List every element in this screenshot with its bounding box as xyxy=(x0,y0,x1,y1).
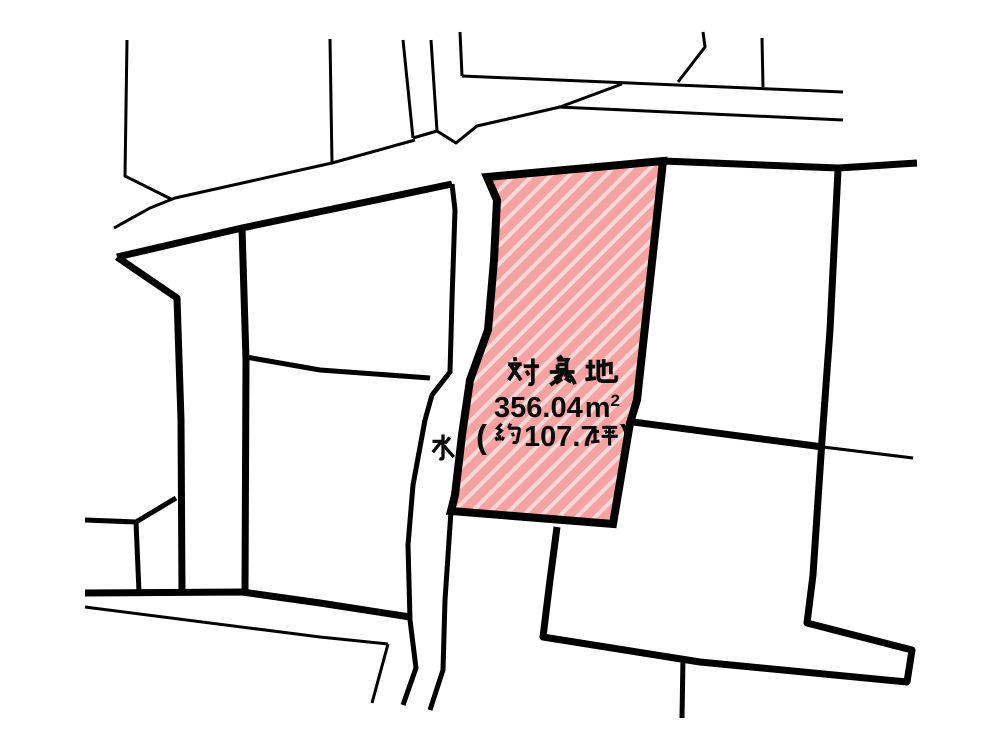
parcel-line xyxy=(682,657,683,718)
road-line xyxy=(460,32,462,76)
cadastral-map: 356.04m2 ( 107.7 ) xyxy=(0,0,1000,750)
tsubo-value: 107.7 xyxy=(524,421,597,453)
paren-open: ( xyxy=(476,418,487,455)
parcel-line xyxy=(242,228,246,590)
parcel-area-value: 356.04 xyxy=(494,392,583,424)
parcel-area-unit: m xyxy=(585,392,611,424)
parcel-area-unit-exponent: 2 xyxy=(611,391,620,410)
plot-map-page: 356.04m2 ( 107.7 ) xyxy=(0,0,1000,750)
parcel-line xyxy=(85,520,136,522)
parcel-area-text: 356.04m2 xyxy=(494,391,620,424)
road-line xyxy=(330,39,332,164)
road-line xyxy=(762,38,763,87)
paren-close: ) xyxy=(620,418,631,455)
